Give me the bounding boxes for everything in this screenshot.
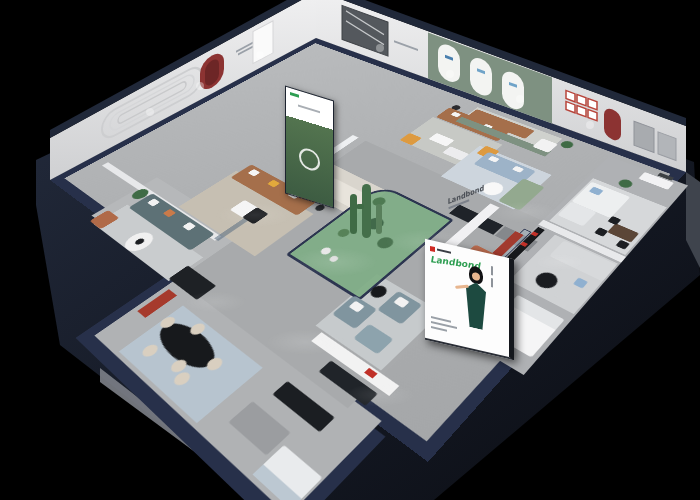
brand-billboard-screen: Landbond: [425, 239, 514, 361]
poster-ring-graphic: [299, 146, 320, 173]
billboard-logo-dash: [437, 248, 451, 253]
forest-banner-poster: [285, 86, 334, 209]
standing-walls-and-lights: [0, 0, 700, 500]
atrium-cacti: [348, 184, 388, 248]
ne-wall-face: [316, 0, 686, 172]
billboard-logo-red: [430, 246, 435, 252]
poster-logo-mark: [290, 92, 299, 98]
poster-text-dash: [298, 104, 320, 113]
showroom-scene: Landbond Landbond: [0, 0, 700, 500]
nw-wall-face: [50, 0, 316, 180]
model-dress: [466, 280, 486, 331]
billboard-text-line: [431, 326, 447, 332]
